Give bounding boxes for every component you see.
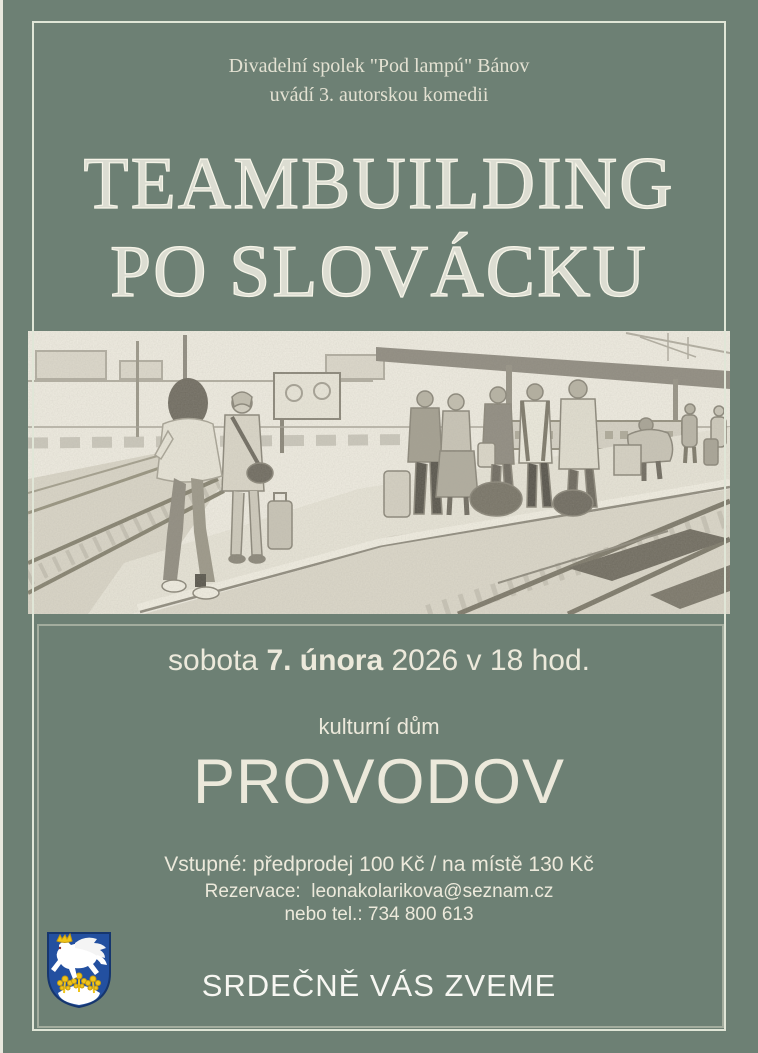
event-date-suffix: 2026 v 18 hod.: [383, 644, 590, 677]
organizer-block: Divadelní spolek "Pod lampú" Bánov uvádí…: [0, 52, 758, 110]
closing-line: SRDEČNĚ VÁS ZVEME: [0, 968, 758, 1004]
price-line: Vstupné: předprodej 100 Kč / na místě 13…: [0, 853, 758, 877]
poster-title: TEAMBUILDING PO SLOVÁCKU: [0, 140, 758, 316]
poster-title-line-1: TEAMBUILDING: [0, 140, 758, 228]
platform-photo-illustration: [28, 331, 730, 614]
event-date-prefix: sobota: [168, 644, 266, 677]
venue-name: PROVODOV: [0, 746, 758, 818]
event-date-day: 7. února: [266, 644, 383, 677]
platform-photo: [28, 331, 730, 614]
reservation-line: Rezervace: leonakolarikova@seznam.cz: [0, 881, 758, 903]
organizer-line-2: uvádí 3. autorskou komedii: [0, 81, 758, 110]
poster-background: Divadelní spolek "Pod lampú" Bánov uvádí…: [0, 0, 758, 1053]
venue-type: kulturní dům: [0, 714, 758, 740]
poster-title-line-2: PO SLOVÁCKU: [0, 228, 758, 316]
event-date: sobota 7. února 2026 v 18 hod.: [0, 644, 758, 678]
organizer-line-1: Divadelní spolek "Pod lampú" Bánov: [0, 52, 758, 81]
photo-grain-overlay: [28, 331, 730, 614]
phone-line: nebo tel.: 734 800 613: [0, 904, 758, 926]
